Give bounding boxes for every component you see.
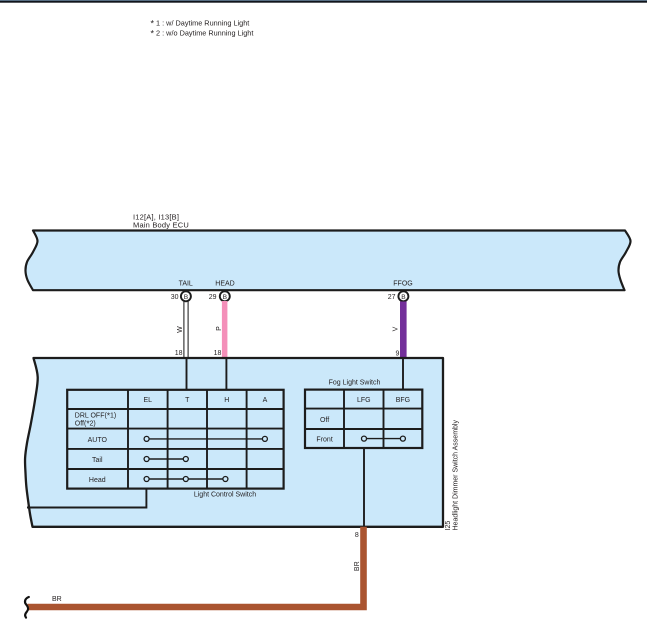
svg-text:18: 18 xyxy=(214,350,222,357)
svg-text:FFOG: FFOG xyxy=(393,280,412,287)
svg-text:Fog Light Switch: Fog Light Switch xyxy=(329,379,381,386)
svg-text:I25: I25 xyxy=(445,521,452,531)
svg-text:BR: BR xyxy=(354,561,361,571)
svg-text:* 1 : w/ Daytime Running Light: * 1 : w/ Daytime Running Light xyxy=(151,18,250,28)
svg-text:Off(*2): Off(*2) xyxy=(75,420,96,429)
svg-text:9: 9 xyxy=(395,351,399,358)
svg-text:HEAD: HEAD xyxy=(215,280,234,287)
svg-text:V: V xyxy=(393,326,400,331)
svg-text:B: B xyxy=(184,294,189,301)
svg-text:W: W xyxy=(177,326,184,333)
svg-text:DRL OFF(*1): DRL OFF(*1) xyxy=(75,412,116,421)
svg-text:29: 29 xyxy=(209,294,217,301)
svg-text:BFG: BFG xyxy=(396,397,410,404)
svg-text:BR: BR xyxy=(52,596,62,603)
svg-text:LFG: LFG xyxy=(357,397,371,404)
svg-text:* 2 : w/o Daytime Running Ligh: * 2 : w/o Daytime Running Light xyxy=(151,28,254,38)
svg-text:Tail: Tail xyxy=(92,457,103,464)
svg-text:Light Control Switch: Light Control Switch xyxy=(194,491,256,498)
svg-text:Off: Off xyxy=(320,417,329,424)
svg-text:A: A xyxy=(263,397,268,404)
svg-text:27: 27 xyxy=(388,294,396,301)
svg-text:B: B xyxy=(401,294,406,301)
svg-text:AUTO: AUTO xyxy=(88,437,108,444)
svg-text:Front: Front xyxy=(316,436,332,443)
svg-text:B: B xyxy=(223,294,228,301)
svg-text:T: T xyxy=(185,397,190,404)
svg-text:Main Body ECU: Main Body ECU xyxy=(133,220,189,229)
svg-text:8: 8 xyxy=(355,532,359,539)
svg-text:18: 18 xyxy=(175,350,183,357)
svg-text:30: 30 xyxy=(171,294,179,301)
svg-text:Head: Head xyxy=(89,477,106,484)
svg-text:Headlight Dimmer Switch Assemb: Headlight Dimmer Switch Assembly xyxy=(452,420,459,531)
svg-text:H: H xyxy=(224,397,229,404)
svg-text:TAIL: TAIL xyxy=(179,280,193,287)
svg-text:EL: EL xyxy=(144,397,153,404)
svg-text:P: P xyxy=(216,326,223,331)
